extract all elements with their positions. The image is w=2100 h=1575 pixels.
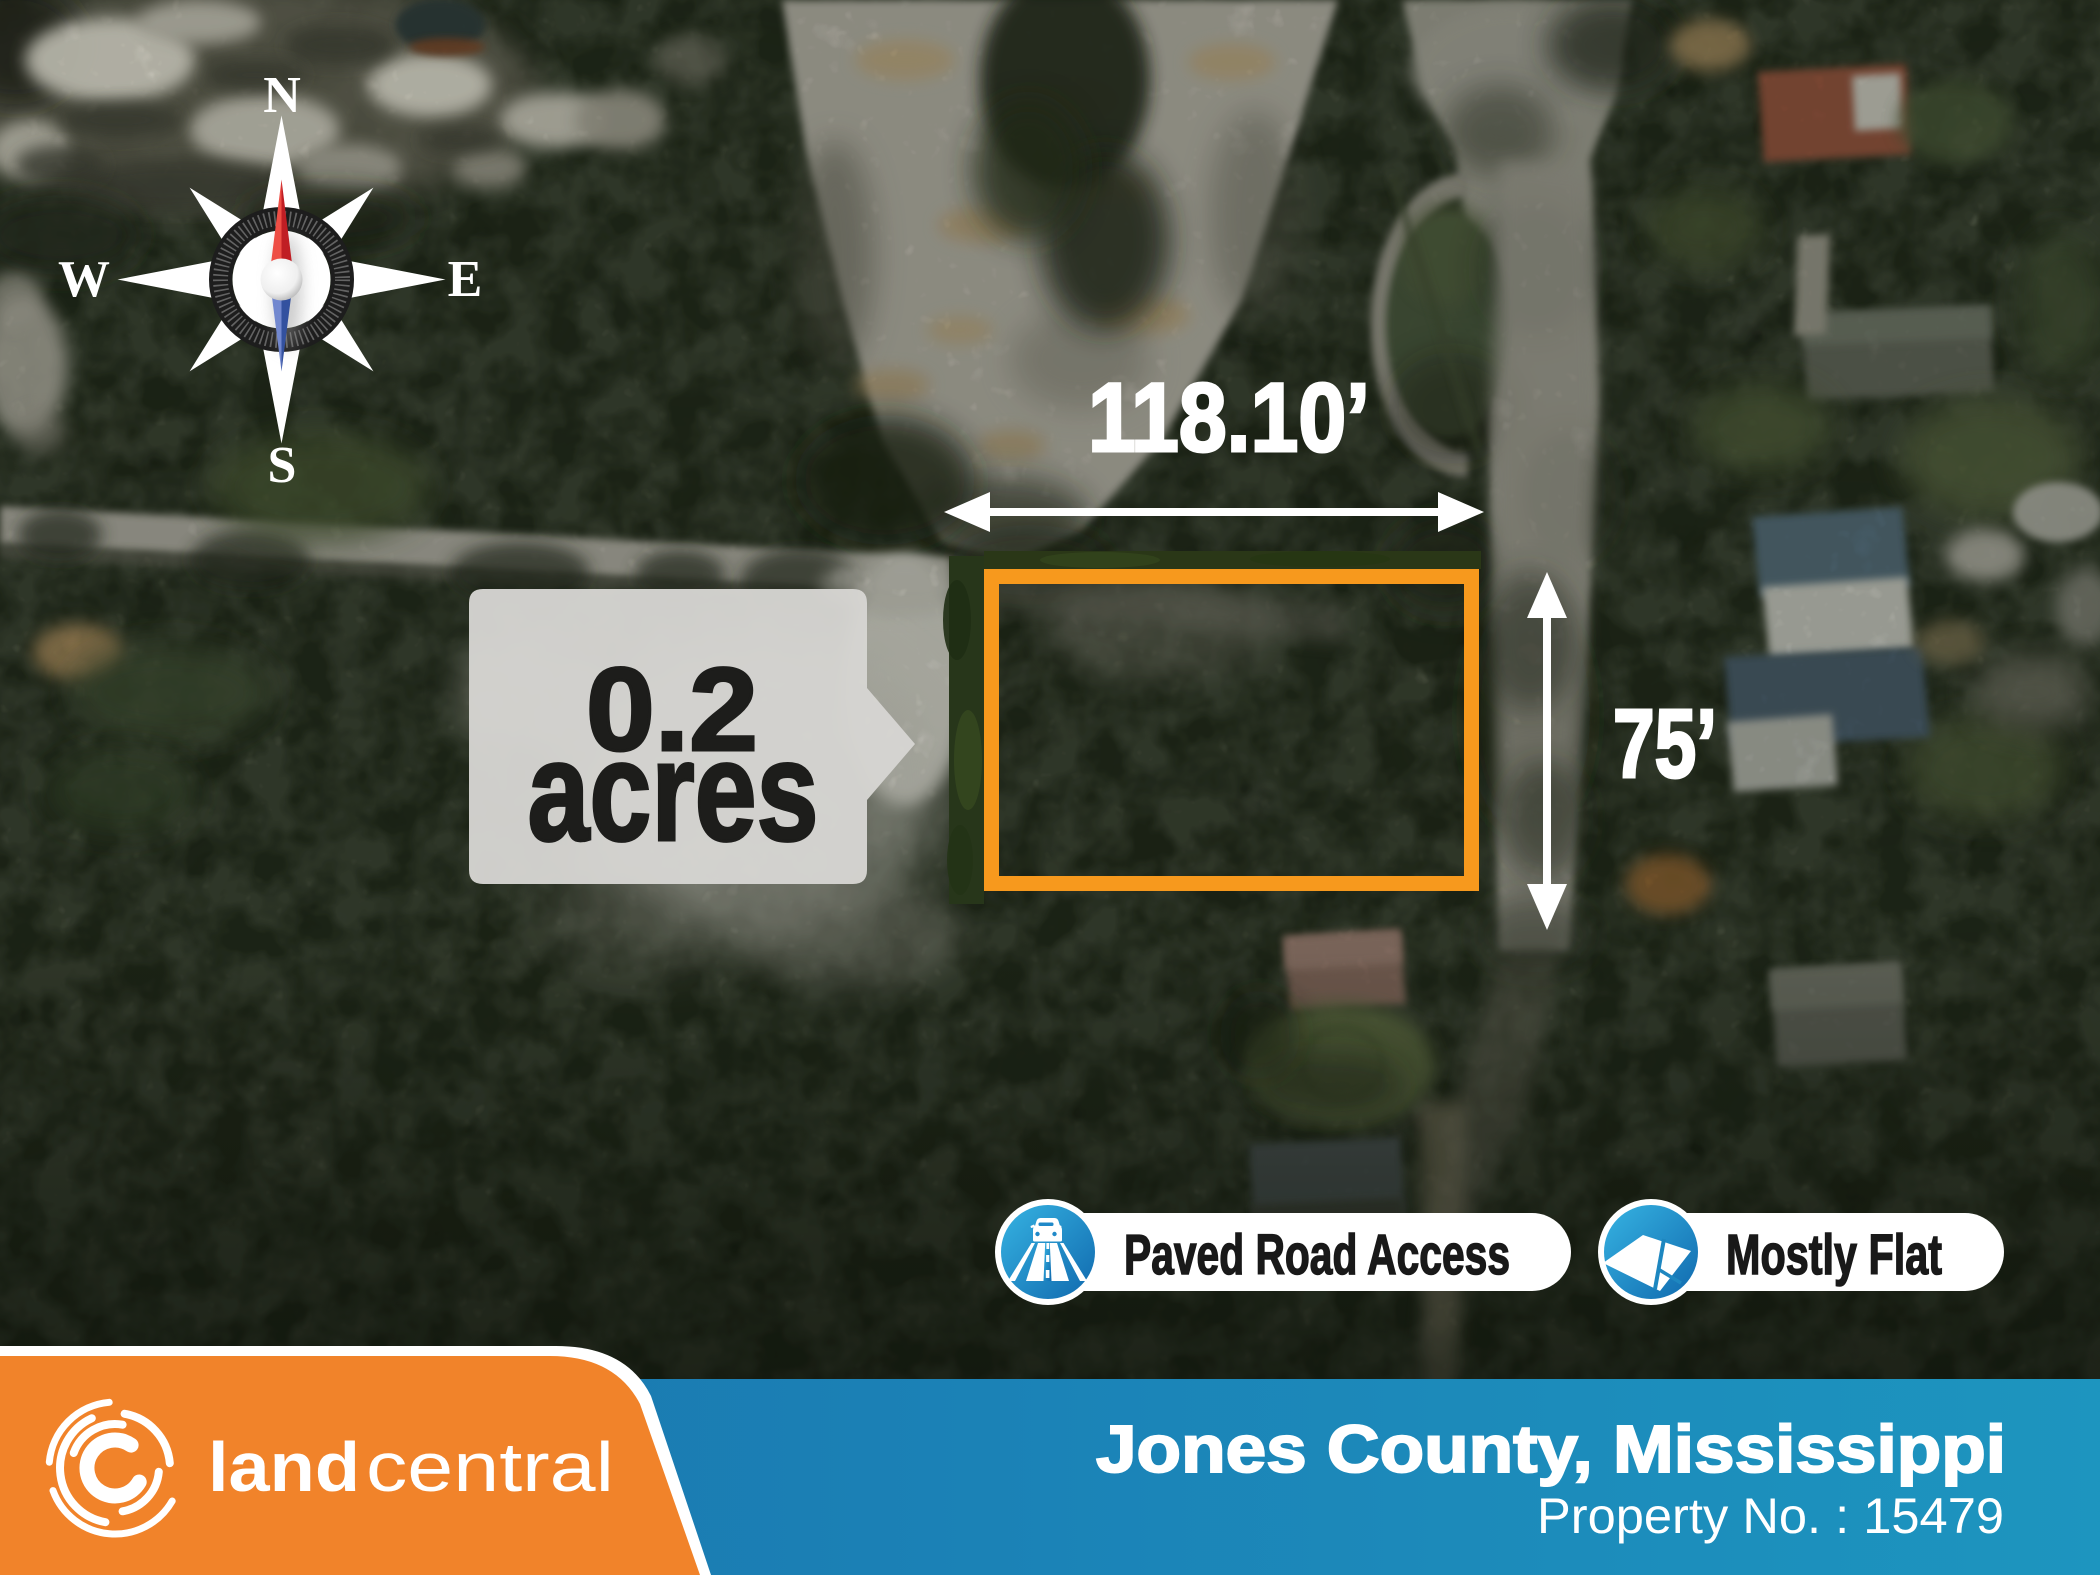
svg-text:75’: 75’ xyxy=(1613,689,1717,798)
svg-text:S: S xyxy=(268,437,297,494)
svg-text:118.10’: 118.10’ xyxy=(1088,363,1370,472)
svg-text:acres: acres xyxy=(528,712,819,871)
svg-text:W: W xyxy=(58,251,110,308)
svg-text:E: E xyxy=(448,251,483,308)
svg-text:N: N xyxy=(263,67,301,124)
svg-text:Mostly Flat: Mostly Flat xyxy=(1726,1223,1942,1287)
svg-text:Paved Road Access: Paved Road Access xyxy=(1124,1223,1510,1287)
svg-text:land: land xyxy=(208,1428,360,1506)
svg-text:Property No. : 15479: Property No. : 15479 xyxy=(1537,1488,2004,1544)
svg-text:Jones County, Mississippi: Jones County, Mississippi xyxy=(1096,1412,2006,1487)
svg-text:central: central xyxy=(366,1428,614,1506)
